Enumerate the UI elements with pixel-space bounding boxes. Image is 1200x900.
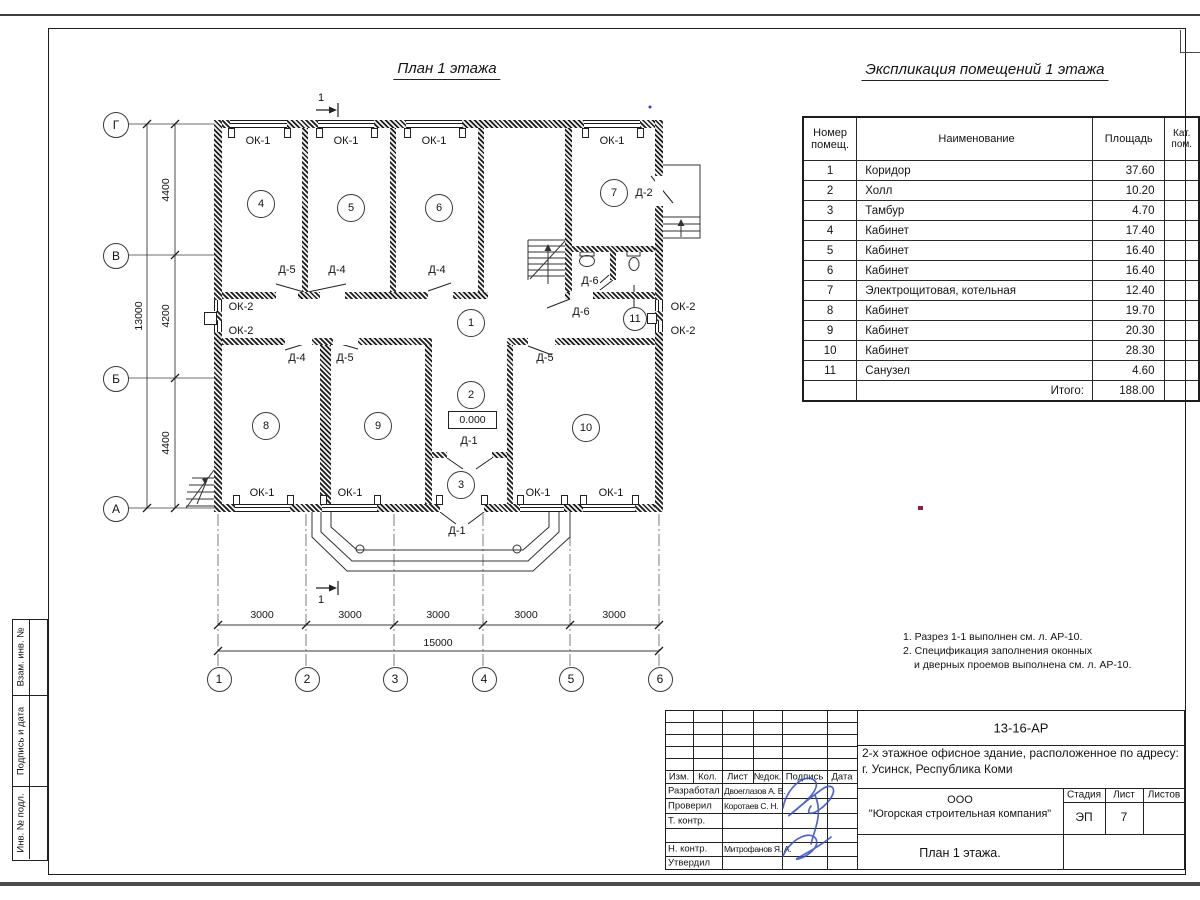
window-quarter-mark	[561, 495, 568, 505]
plan-label: Д-5	[336, 352, 353, 364]
table-row: 7Электрощитовая, котельная12.40	[803, 281, 1199, 301]
wall-pier	[647, 313, 657, 324]
window-quarter-mark	[517, 495, 524, 505]
room-number-bubble: 2	[457, 381, 485, 409]
window-quarter-mark	[436, 495, 443, 505]
door-opening	[488, 292, 565, 299]
plan-label: ОК-1	[250, 487, 275, 499]
dimension-label: 15000	[423, 637, 452, 649]
axis-bubble: Г	[103, 112, 129, 138]
window-quarter-mark	[374, 495, 381, 505]
window-opening	[214, 300, 222, 311]
window-opening	[318, 120, 374, 128]
window-quarter-mark	[371, 128, 378, 138]
door-opening	[276, 292, 298, 299]
door-opening	[428, 292, 453, 299]
window-opening	[584, 120, 640, 128]
window-quarter-mark	[287, 495, 294, 505]
sidebar-label: Взам. инв. №	[16, 628, 27, 687]
room-number-bubble: 10	[572, 414, 600, 442]
sidebar-divider	[29, 695, 30, 786]
wall	[320, 345, 331, 504]
window-quarter-mark	[481, 495, 488, 505]
table-row: 2Холл10.20	[803, 181, 1199, 201]
door-opening	[655, 176, 663, 206]
room-number-bubble: 4	[247, 190, 275, 218]
room-number-bubble: 11	[623, 307, 647, 331]
window-opening	[520, 504, 564, 512]
sidebar-divider	[29, 786, 30, 859]
plan-label: ОК-1	[338, 487, 363, 499]
signatures	[665, 710, 1185, 870]
wall	[565, 128, 572, 299]
dimension-label: 3000	[426, 609, 449, 621]
dimension-label: 3000	[602, 609, 625, 621]
room-number-bubble: 1	[457, 309, 485, 337]
plan-label: Д-1	[460, 435, 477, 447]
table-row: 3Тамбур4.70	[803, 201, 1199, 221]
axis-bubble: 5	[559, 667, 584, 692]
door-opening	[320, 292, 345, 299]
door-opening	[447, 452, 492, 458]
door-opening	[528, 338, 555, 345]
plan-label: ОК-1	[600, 135, 625, 147]
window-quarter-mark	[632, 495, 639, 505]
plan-label: ОК-2	[229, 325, 254, 337]
axis-bubble: 3	[383, 667, 408, 692]
room-number-bubble: 9	[364, 412, 392, 440]
plan-label: ОК-1	[422, 135, 447, 147]
window-quarter-mark	[316, 128, 323, 138]
plan-label: ОК-2	[671, 325, 696, 337]
window-quarter-mark	[404, 128, 411, 138]
dimension-label: 4200	[160, 304, 172, 327]
plan-label: ОК-1	[246, 135, 271, 147]
drawing-sheet: План 1 этажа Экспликация помещений 1 эта…	[0, 0, 1200, 900]
window-quarter-mark	[637, 128, 644, 138]
col-header-category: Кат. пом.	[1165, 117, 1199, 161]
window-quarter-mark	[233, 495, 240, 505]
door-opening	[570, 292, 593, 299]
sidebar-divider	[29, 619, 30, 695]
plan-label: Д-6	[581, 275, 598, 287]
wall-pilaster	[204, 312, 217, 325]
window-quarter-mark	[459, 128, 466, 138]
table-total-row: Итого:188.00	[803, 381, 1199, 402]
axis-bubble: 2	[295, 667, 320, 692]
explication-table: Номер помещ. Наименование Площадь Кат. п…	[802, 116, 1200, 402]
drawing-notes: 1. Разрез 1-1 выполнен см. л. АР-10. 2. …	[903, 630, 1131, 672]
wall	[610, 252, 616, 280]
table-row: 8Кабинет19.70	[803, 301, 1199, 321]
dimension-label: 3000	[250, 609, 273, 621]
room-number-bubble: 7	[600, 179, 628, 207]
plan-label: Д-4	[288, 352, 305, 364]
col-header-area: Площадь	[1092, 117, 1165, 161]
plan-label: ОК-1	[599, 487, 624, 499]
window-opening	[235, 504, 290, 512]
wall	[425, 345, 432, 504]
red-scan-speck	[918, 506, 923, 510]
table-row: 11Санузел4.60	[803, 361, 1199, 381]
table-row: 4Кабинет17.40	[803, 221, 1199, 241]
window-quarter-mark	[582, 128, 589, 138]
axis-bubble: 6	[648, 667, 673, 692]
col-header-name: Наименование	[857, 117, 1093, 161]
elevation-mark: 0.000	[448, 411, 497, 429]
plan-label: 1	[318, 92, 324, 104]
plan-label: ОК-2	[671, 301, 696, 313]
plan-label: Д-2	[635, 187, 652, 199]
plan-label: Д-5	[536, 352, 553, 364]
room-number-bubble: 8	[252, 412, 280, 440]
plan-label: Д-4	[428, 264, 445, 276]
axis-bubble: 1	[207, 667, 232, 692]
axis-bubble: А	[103, 496, 129, 522]
dimension-label: 13000	[133, 301, 145, 330]
plan-label: 1	[318, 594, 324, 606]
axis-bubble: 4	[472, 667, 497, 692]
blue-ink-dot	[649, 106, 652, 109]
axis-bubble: В	[103, 243, 129, 269]
wall	[478, 128, 484, 292]
dimension-label: 4400	[160, 431, 172, 454]
axis-bubble: Б	[103, 366, 129, 392]
room-number-bubble: 5	[337, 194, 365, 222]
window-quarter-mark	[228, 128, 235, 138]
col-header-number: Номер помещ.	[803, 117, 857, 161]
door-opening	[285, 338, 312, 345]
plan-label: ОК-2	[229, 301, 254, 313]
door-opening	[432, 338, 507, 345]
dimension-label: 3000	[514, 609, 537, 621]
note-line: 2. Спецификация заполнения оконных	[903, 644, 1131, 658]
plan-label: ОК-1	[526, 487, 551, 499]
window-quarter-mark	[580, 495, 587, 505]
window-opening	[322, 504, 377, 512]
window-opening	[655, 300, 663, 311]
table-row: 9Кабинет20.30	[803, 321, 1199, 341]
room-number-bubble: 6	[425, 194, 453, 222]
sidebar-label: Инв. № подл.	[16, 793, 27, 852]
table-row: 5Кабинет16.40	[803, 241, 1199, 261]
window-opening	[230, 120, 287, 128]
plan-label: Д-5	[278, 264, 295, 276]
window-opening	[583, 504, 635, 512]
sidebar-label: Подпись и дата	[16, 706, 27, 774]
door-opening	[440, 504, 484, 512]
window-quarter-mark	[284, 128, 291, 138]
note-line: и дверных проемов выполнена см. л. АР-10…	[903, 658, 1131, 672]
table-row: 1Коридор37.60	[803, 161, 1199, 181]
window-opening	[406, 120, 462, 128]
dimension-label: 3000	[338, 609, 361, 621]
door-opening	[333, 338, 358, 345]
wall	[302, 128, 308, 292]
plan-label: ОК-1	[334, 135, 359, 147]
plan-label: Д-6	[572, 306, 589, 318]
plan-label: Д-1	[448, 525, 465, 537]
table-row: 10Кабинет28.30	[803, 341, 1199, 361]
room-number-bubble: 3	[447, 471, 475, 499]
table-row: 6Кабинет16.40	[803, 261, 1199, 281]
wall	[390, 128, 396, 292]
plan-label: Д-4	[328, 264, 345, 276]
wall	[507, 345, 513, 504]
window-quarter-mark	[320, 495, 327, 505]
dimension-label: 4400	[160, 178, 172, 201]
note-line: 1. Разрез 1-1 выполнен см. л. АР-10.	[903, 630, 1131, 644]
